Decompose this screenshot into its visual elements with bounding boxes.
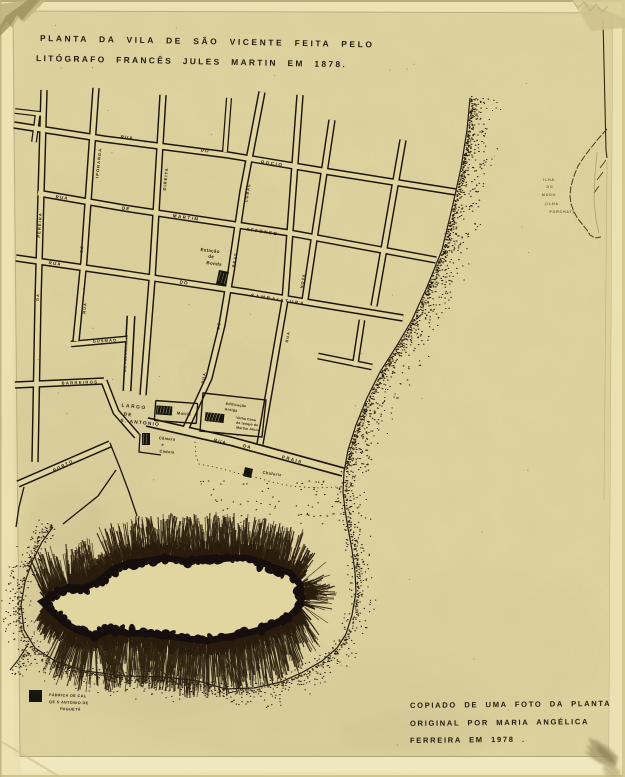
svg-text:DE: DE (80, 245, 85, 253)
svg-text:DO: DO (547, 185, 554, 189)
svg-text:DA: DA (36, 293, 41, 301)
svg-text:DE: DE (122, 206, 131, 212)
svg-text:ORIGINAL POR MARIA ANGÉLIC: ORIGINAL POR MARIA ANGÉLICA (410, 717, 589, 728)
svg-text:PORCHAT): PORCHAT) (549, 210, 574, 214)
svg-text:e: e (161, 442, 165, 447)
svg-text:de: de (208, 254, 215, 260)
svg-text:ILHA: ILHA (543, 178, 555, 182)
svg-text:FERREIRA EM 1978 .: FERREIRA EM 1978 . (410, 735, 526, 745)
svg-text:MUDO: MUDO (542, 193, 556, 197)
svg-text:(ILHA: (ILHA (545, 202, 559, 206)
svg-text:DE: DE (123, 412, 133, 419)
svg-text:PAGUETÁ: PAGUETÁ (60, 706, 81, 712)
